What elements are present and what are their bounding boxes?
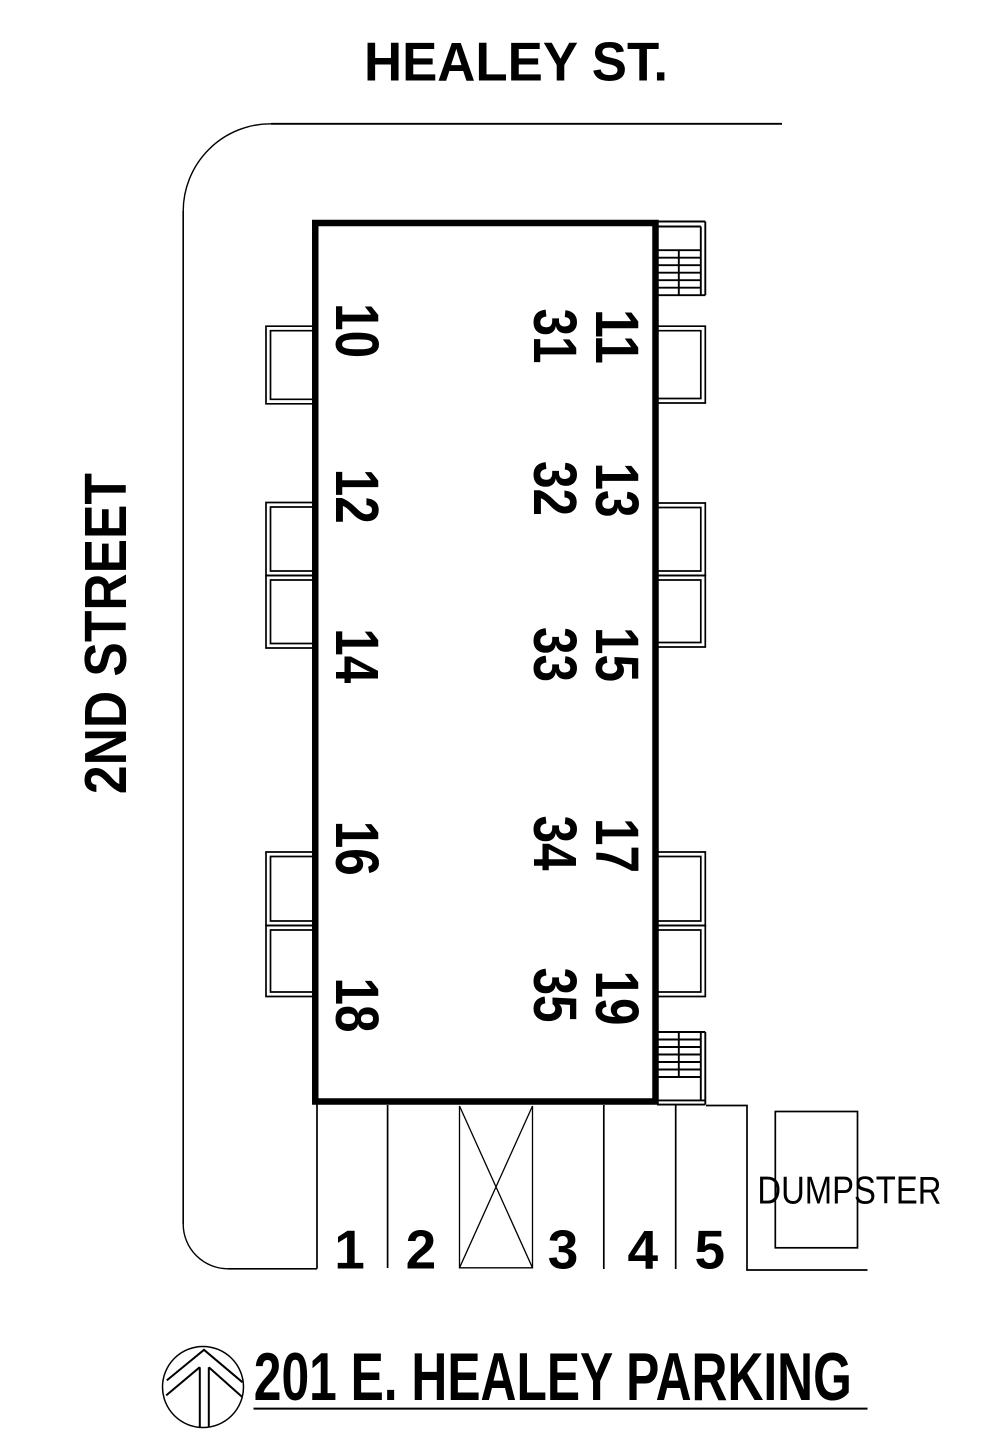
svg-text:13: 13 bbox=[583, 463, 651, 518]
svg-text:31: 31 bbox=[521, 309, 589, 364]
svg-text:4: 4 bbox=[628, 1219, 659, 1281]
svg-text:2ND STREET: 2ND STREET bbox=[73, 473, 139, 794]
svg-text:3: 3 bbox=[548, 1219, 579, 1281]
svg-text:32: 32 bbox=[521, 461, 589, 516]
svg-text:12: 12 bbox=[323, 469, 391, 524]
svg-text:1: 1 bbox=[334, 1219, 365, 1281]
svg-text:34: 34 bbox=[521, 816, 589, 871]
svg-text:33: 33 bbox=[521, 627, 589, 682]
svg-text:15: 15 bbox=[583, 627, 651, 682]
svg-text:11: 11 bbox=[583, 309, 651, 364]
svg-text:2: 2 bbox=[406, 1219, 437, 1281]
svg-text:17: 17 bbox=[583, 818, 651, 873]
svg-text:10: 10 bbox=[323, 303, 391, 358]
svg-text:14: 14 bbox=[323, 628, 391, 683]
svg-text:HEALEY ST.: HEALEY ST. bbox=[364, 31, 668, 93]
svg-text:18: 18 bbox=[323, 978, 391, 1033]
svg-text:5: 5 bbox=[695, 1219, 726, 1281]
svg-text:16: 16 bbox=[323, 821, 391, 876]
svg-text:DUMPSTER: DUMPSTER bbox=[757, 1170, 941, 1213]
svg-text:35: 35 bbox=[521, 968, 589, 1023]
svg-text:19: 19 bbox=[583, 971, 651, 1026]
svg-text:201 E. HEALEY PARKING: 201 E. HEALEY PARKING bbox=[254, 1339, 852, 1415]
